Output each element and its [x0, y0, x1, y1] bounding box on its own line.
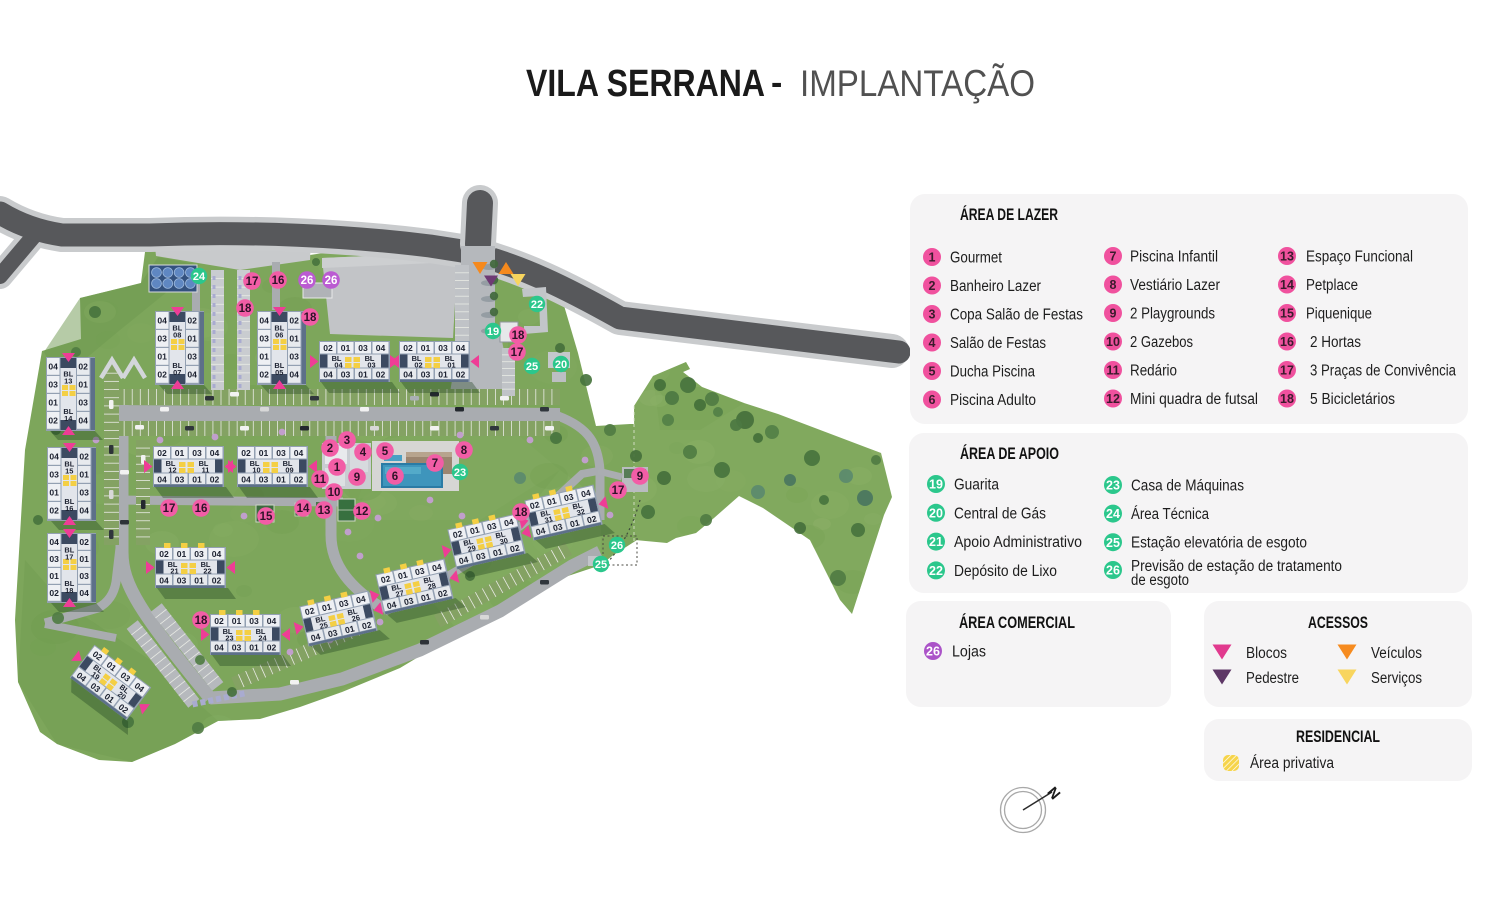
svg-text:03: 03	[48, 379, 58, 389]
svg-text:8: 8	[1110, 278, 1117, 292]
svg-text:Petplace: Petplace	[1306, 277, 1358, 294]
svg-text:10: 10	[328, 487, 341, 499]
svg-text:26: 26	[301, 275, 314, 287]
svg-text:10: 10	[252, 466, 260, 475]
svg-text:04: 04	[78, 415, 88, 425]
svg-text:Redário: Redário	[1130, 363, 1177, 380]
svg-text:Depósito de Lixo: Depósito de Lixo	[954, 563, 1057, 580]
svg-text:23: 23	[225, 634, 233, 643]
svg-text:02: 02	[49, 505, 59, 515]
svg-text:03: 03	[232, 643, 242, 653]
svg-text:04: 04	[79, 588, 89, 598]
svg-text:19: 19	[487, 326, 499, 338]
svg-text:14: 14	[64, 414, 73, 423]
svg-text:-: -	[771, 64, 782, 102]
svg-text:18: 18	[1280, 392, 1294, 406]
svg-text:01: 01	[438, 370, 448, 380]
svg-text:Blocos: Blocos	[1246, 645, 1287, 662]
svg-text:20: 20	[929, 506, 943, 520]
svg-text:11: 11	[314, 474, 327, 486]
svg-text:12: 12	[1106, 392, 1120, 406]
svg-text:ÁREA DE APOIO: ÁREA DE APOIO	[960, 444, 1059, 463]
svg-text:Estação elevatória de esgoto: Estação elevatória de esgoto	[1131, 535, 1307, 552]
svg-text:18: 18	[195, 615, 208, 627]
svg-text:01: 01	[177, 549, 187, 559]
svg-text:03: 03	[358, 343, 368, 353]
svg-text:01: 01	[447, 361, 455, 370]
svg-text:3 Praças de Convivência: 3 Praças de Convivência	[1310, 363, 1456, 380]
svg-text:03: 03	[438, 343, 448, 353]
svg-text:02: 02	[79, 451, 89, 461]
svg-text:15: 15	[260, 511, 273, 523]
svg-text:03: 03	[421, 370, 431, 380]
svg-text:02: 02	[323, 343, 333, 353]
svg-text:02: 02	[294, 475, 304, 485]
svg-text:02: 02	[79, 537, 89, 547]
svg-text:06: 06	[275, 331, 283, 340]
svg-text:5 Bicicletários: 5 Bicicletários	[1310, 391, 1395, 408]
svg-text:04: 04	[187, 369, 197, 379]
svg-text:03: 03	[367, 361, 375, 370]
svg-text:1: 1	[334, 462, 341, 474]
svg-text:02: 02	[187, 315, 197, 325]
svg-text:03: 03	[341, 370, 351, 380]
svg-text:02: 02	[403, 343, 413, 353]
svg-text:Ducha Piscina: Ducha Piscina	[950, 364, 1035, 381]
svg-text:02: 02	[414, 361, 422, 370]
svg-text:3: 3	[929, 308, 936, 322]
svg-text:Apoio Administrativo: Apoio Administrativo	[954, 534, 1082, 551]
svg-text:04: 04	[157, 315, 167, 325]
svg-text:02: 02	[267, 643, 277, 653]
svg-text:03: 03	[177, 576, 187, 586]
svg-text:14: 14	[1280, 278, 1294, 292]
svg-text:15: 15	[1280, 307, 1294, 321]
svg-text:01: 01	[259, 351, 269, 361]
svg-text:25: 25	[526, 361, 538, 373]
svg-text:1: 1	[929, 251, 936, 265]
svg-text:26: 26	[1106, 564, 1120, 578]
svg-text:21: 21	[170, 567, 178, 576]
svg-text:03: 03	[249, 616, 259, 626]
svg-text:Serviços: Serviços	[1371, 670, 1422, 687]
svg-text:16: 16	[65, 504, 73, 513]
svg-text:4: 4	[360, 447, 367, 459]
svg-text:05: 05	[275, 368, 283, 377]
svg-text:2 Hortas: 2 Hortas	[1310, 334, 1361, 351]
svg-text:01: 01	[49, 487, 59, 497]
svg-text:04: 04	[48, 361, 58, 371]
svg-text:02: 02	[78, 361, 88, 371]
svg-text:8: 8	[461, 445, 468, 457]
svg-text:9: 9	[637, 471, 643, 483]
svg-text:7: 7	[1110, 250, 1117, 264]
svg-text:22: 22	[929, 564, 943, 578]
svg-text:04: 04	[334, 361, 343, 370]
svg-text:01: 01	[78, 379, 88, 389]
svg-text:01: 01	[232, 616, 242, 626]
svg-text:03: 03	[79, 571, 89, 581]
svg-text:04: 04	[403, 370, 413, 380]
svg-text:Veículos: Veículos	[1371, 645, 1422, 662]
svg-text:22: 22	[203, 567, 211, 576]
svg-text:04: 04	[49, 451, 59, 461]
svg-text:04: 04	[289, 369, 299, 379]
svg-text:23: 23	[454, 467, 466, 479]
svg-text:03: 03	[49, 469, 59, 479]
svg-text:13: 13	[318, 505, 331, 517]
svg-text:25: 25	[595, 559, 607, 571]
svg-text:01: 01	[187, 333, 197, 343]
svg-text:2: 2	[929, 279, 936, 293]
svg-text:19: 19	[929, 478, 943, 492]
svg-text:02: 02	[376, 370, 386, 380]
svg-text:03: 03	[78, 397, 88, 407]
svg-text:04: 04	[212, 549, 222, 559]
svg-text:17: 17	[163, 503, 176, 515]
svg-text:11: 11	[202, 466, 210, 475]
svg-text:03: 03	[276, 448, 286, 458]
svg-text:01: 01	[194, 576, 204, 586]
svg-text:Vestiário Lazer: Vestiário Lazer	[1130, 277, 1220, 294]
svg-text:03: 03	[157, 333, 167, 343]
svg-text:24: 24	[193, 271, 206, 283]
svg-text:01: 01	[175, 448, 185, 458]
svg-text:26: 26	[926, 645, 940, 659]
svg-text:15: 15	[65, 467, 73, 476]
svg-text:02: 02	[456, 370, 466, 380]
svg-text:02: 02	[159, 549, 169, 559]
svg-text:Salão de Festas: Salão de Festas	[950, 335, 1046, 352]
svg-text:23: 23	[1106, 479, 1120, 493]
svg-text:N: N	[1043, 784, 1063, 803]
svg-text:01: 01	[192, 475, 202, 485]
svg-text:ÁREA COMERCIAL: ÁREA COMERCIAL	[959, 613, 1075, 632]
svg-text:7: 7	[432, 458, 438, 470]
svg-text:03: 03	[259, 475, 269, 485]
svg-text:04: 04	[214, 643, 224, 653]
svg-text:2 Gazebos: 2 Gazebos	[1130, 334, 1193, 351]
svg-text:17: 17	[246, 276, 259, 288]
svg-text:13: 13	[1280, 250, 1294, 264]
svg-text:03: 03	[187, 351, 197, 361]
svg-text:12: 12	[168, 466, 176, 475]
svg-text:03: 03	[79, 487, 89, 497]
svg-text:02: 02	[212, 576, 222, 586]
svg-text:18: 18	[239, 303, 252, 315]
svg-text:03: 03	[175, 475, 185, 485]
svg-text:04: 04	[259, 315, 269, 325]
svg-text:01: 01	[48, 397, 58, 407]
svg-text:Área privativa: Área privativa	[1250, 755, 1334, 772]
svg-text:ÁREA DE LAZER: ÁREA DE LAZER	[960, 205, 1058, 224]
svg-text:IMPLANTAÇÃO: IMPLANTAÇÃO	[800, 63, 1035, 104]
svg-text:01: 01	[276, 475, 286, 485]
svg-text:Pedestre: Pedestre	[1246, 670, 1299, 687]
svg-text:9: 9	[354, 472, 360, 484]
svg-text:Espaço Funcional: Espaço Funcional	[1306, 249, 1413, 266]
svg-text:3: 3	[344, 435, 350, 447]
svg-text:de esgoto: de esgoto	[1131, 572, 1189, 589]
svg-text:02: 02	[214, 616, 224, 626]
svg-text:04: 04	[323, 370, 333, 380]
svg-text:01: 01	[289, 333, 299, 343]
svg-text:6: 6	[392, 471, 398, 483]
svg-text:04: 04	[456, 343, 466, 353]
svg-text:04: 04	[79, 505, 89, 515]
svg-text:02: 02	[157, 369, 167, 379]
svg-text:01: 01	[79, 469, 89, 479]
svg-text:01: 01	[421, 343, 431, 353]
svg-text:ACESSOS: ACESSOS	[1308, 613, 1368, 632]
svg-text:04: 04	[159, 576, 169, 586]
svg-text:04: 04	[210, 448, 220, 458]
svg-text:Lojas: Lojas	[952, 644, 986, 661]
svg-text:17: 17	[1280, 364, 1294, 378]
svg-text:24: 24	[1106, 507, 1120, 521]
svg-text:04: 04	[376, 343, 386, 353]
svg-text:Piscina Adulto: Piscina Adulto	[950, 392, 1036, 409]
svg-text:26: 26	[325, 275, 338, 287]
svg-text:07: 07	[173, 368, 181, 377]
svg-text:5: 5	[929, 365, 936, 379]
svg-text:Gourmet: Gourmet	[950, 250, 1003, 267]
svg-text:02: 02	[49, 588, 59, 598]
svg-text:RESIDENCIAL: RESIDENCIAL	[1296, 727, 1380, 746]
svg-text:14: 14	[297, 503, 310, 515]
svg-text:16: 16	[272, 275, 285, 287]
svg-text:18: 18	[515, 507, 528, 519]
svg-text:02: 02	[241, 448, 251, 458]
svg-text:18: 18	[65, 586, 73, 595]
svg-text:03: 03	[192, 448, 202, 458]
svg-text:4: 4	[929, 336, 936, 350]
svg-text:18: 18	[304, 312, 317, 324]
svg-text:6: 6	[929, 393, 936, 407]
svg-text:02: 02	[48, 415, 58, 425]
svg-text:02: 02	[210, 475, 220, 485]
svg-text:03: 03	[289, 351, 299, 361]
svg-text:04: 04	[157, 475, 167, 485]
svg-text:01: 01	[49, 571, 59, 581]
svg-text:11: 11	[1106, 364, 1119, 378]
svg-text:01: 01	[79, 554, 89, 564]
svg-text:12: 12	[356, 506, 369, 518]
svg-text:2 Playgrounds: 2 Playgrounds	[1130, 306, 1215, 323]
svg-text:2: 2	[327, 443, 333, 455]
svg-text:Piquenique: Piquenique	[1306, 306, 1372, 323]
svg-text:04: 04	[294, 448, 304, 458]
svg-text:22: 22	[531, 299, 543, 311]
svg-text:03: 03	[259, 333, 269, 343]
svg-text:02: 02	[157, 448, 167, 458]
svg-text:02: 02	[259, 369, 269, 379]
svg-text:09: 09	[285, 466, 293, 475]
svg-text:13: 13	[64, 377, 72, 386]
svg-text:01: 01	[358, 370, 368, 380]
svg-text:10: 10	[1106, 335, 1120, 349]
svg-text:Banheiro Lazer: Banheiro Lazer	[950, 278, 1041, 295]
svg-text:Guarita: Guarita	[954, 477, 999, 494]
svg-text:03: 03	[49, 554, 59, 564]
svg-text:08: 08	[173, 331, 181, 340]
svg-text:04: 04	[49, 537, 59, 547]
svg-text:5: 5	[382, 446, 389, 458]
svg-text:21: 21	[929, 535, 943, 549]
svg-text:Central de Gás: Central de Gás	[954, 505, 1046, 522]
svg-text:01: 01	[259, 448, 269, 458]
svg-text:20: 20	[555, 359, 567, 371]
svg-text:03: 03	[194, 549, 204, 559]
svg-text:Mini quadra de futsal: Mini quadra de futsal	[1130, 391, 1258, 408]
svg-text:16: 16	[1280, 335, 1294, 349]
svg-text:25: 25	[1106, 536, 1120, 550]
svg-text:01: 01	[341, 343, 351, 353]
svg-text:24: 24	[258, 634, 267, 643]
svg-text:17: 17	[612, 485, 625, 497]
svg-text:Copa Salão de Festas: Copa Salão de Festas	[950, 307, 1083, 324]
svg-text:16: 16	[195, 503, 208, 515]
svg-text:18: 18	[512, 330, 525, 342]
svg-text:17: 17	[511, 347, 524, 359]
svg-text:02: 02	[289, 315, 299, 325]
svg-text:04: 04	[267, 616, 277, 626]
svg-text:04: 04	[241, 475, 251, 485]
svg-text:Casa de Máquinas: Casa de Máquinas	[1131, 478, 1244, 495]
svg-text:Piscina Infantil: Piscina Infantil	[1130, 249, 1218, 266]
svg-text:01: 01	[249, 643, 259, 653]
svg-text:26: 26	[611, 540, 623, 552]
svg-text:17: 17	[65, 553, 73, 562]
svg-text:9: 9	[1110, 307, 1117, 321]
svg-text:VILA SERRANA: VILA SERRANA	[526, 63, 765, 105]
svg-text:Área Técnica: Área Técnica	[1131, 506, 1209, 523]
svg-text:01: 01	[157, 351, 167, 361]
